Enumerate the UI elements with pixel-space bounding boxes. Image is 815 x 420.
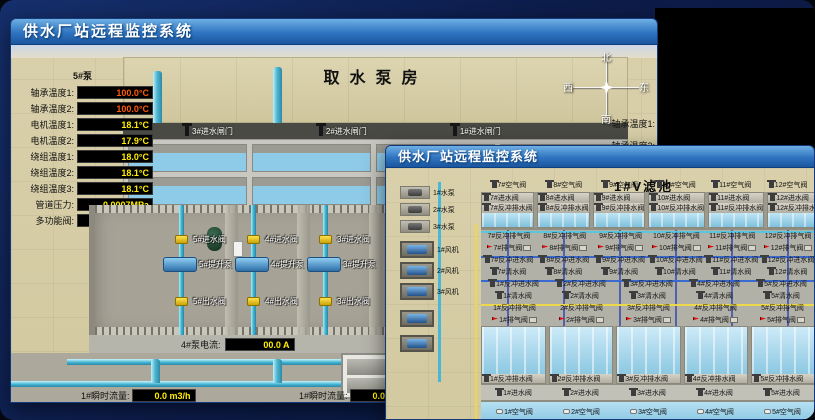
valve-box <box>663 317 671 323</box>
exhaust-valve[interactable]: 5#排气阀 <box>749 314 814 326</box>
exhaust-valve[interactable]: 2#排气阀 <box>548 314 615 326</box>
panel-row-label: 轴承温度2: <box>15 102 77 115</box>
bw-exhaust-label: 7#反冲排气阀 <box>488 231 531 241</box>
bw-exhaust-valve[interactable]: 8#反冲排气阀 <box>537 230 593 242</box>
panel-row-label: 多功能阀: <box>15 214 77 227</box>
valve-icon <box>631 293 636 299</box>
blower-housing <box>400 262 434 279</box>
blower-unit[interactable]: 2#风机 <box>400 262 481 279</box>
blower-label: 3#风机 <box>437 287 459 297</box>
exhaust-label: 2#排气阀 <box>566 315 595 325</box>
pump-column: 3#进水阀 3#提升泵 3#出水阀 <box>305 205 377 335</box>
top-air-valve-row: 7#空气阀 8#空气阀 9#空气阀 <box>481 168 814 192</box>
bw-inlet-label: 5#反冲进水阀 <box>764 279 807 289</box>
exhaust-label: 9#排气阀 <box>605 243 634 253</box>
bw-exhaust-valve[interactable]: 2#反冲排气阀 <box>548 302 615 314</box>
valve-icon <box>631 390 636 396</box>
air-valve[interactable]: 3#空气阀 <box>615 407 682 417</box>
lift-pump-icon[interactable] <box>163 257 197 272</box>
valve-icon <box>698 390 703 396</box>
clean-valve[interactable]: 5#清水阀 <box>749 290 814 302</box>
lift-pump-icon[interactable] <box>235 257 269 272</box>
red-flag-icon <box>760 317 766 323</box>
valve-box <box>797 317 805 323</box>
row-bw-inlet-bottom: 1#反冲进水阀2#反冲进水阀3#反冲进水阀4#反冲进水阀5#反冲进水阀 <box>481 278 814 290</box>
intake-gate[interactable]: 2#进水闸门 <box>319 126 367 137</box>
exhaust-valve[interactable]: 9#排气阀 <box>593 242 649 254</box>
bw-exhaust-label: 8#反冲排气阀 <box>543 231 586 241</box>
blower-unit[interactable]: 1#风机 <box>400 241 481 258</box>
clean-valve[interactable]: 4#清水阀 <box>682 290 749 302</box>
clean-valve-label: 12#清水阀 <box>775 267 808 277</box>
filter-cell[interactable]: 11#进水阀 11#反冲排水阀 <box>708 192 764 228</box>
clean-valve-label: 3#清水阀 <box>637 291 666 301</box>
clean-valve-label: 1#清水阀 <box>503 291 532 301</box>
gate-label: 1#进水闸门 <box>460 126 501 137</box>
scene-title: 取水泵房 <box>124 58 627 88</box>
panel-row: 电机温度1: 18.1°C <box>15 118 169 131</box>
valve-icon <box>596 195 601 201</box>
clean-valve-label: 11#清水阀 <box>719 267 751 277</box>
bottom-inlet-row: 1#进水阀 2#进水阀 3#进水阀 <box>481 384 814 400</box>
valve-icon <box>765 293 770 299</box>
water-pump-label: 1#水泵 <box>433 188 455 198</box>
float-valve-icon <box>563 409 570 414</box>
exhaust-label: 11#排气阀 <box>715 243 747 253</box>
bw-inlet-label: 12#反冲进水阀 <box>768 255 814 265</box>
pump-column: 4#进水阀 4#提升泵 4#出水阀 <box>233 205 305 335</box>
blower-label: 1#风机 <box>437 245 459 255</box>
bw-inlet-valve[interactable]: 11#反冲进水阀 <box>704 254 760 266</box>
pump-columns: 5#进水阀 5#提升泵 5#出水阀 4#进水阀 4#提升泵 <box>161 205 377 335</box>
bw-exhaust-valve[interactable]: 9#反冲排气阀 <box>593 230 649 242</box>
clean-valve-label: 4#清水阀 <box>704 291 733 301</box>
bw-exhaust-valve[interactable]: 7#反冲排气阀 <box>481 230 537 242</box>
exhaust-valve[interactable]: 10#排气阀 <box>648 242 704 254</box>
clean-valve[interactable]: 1#清水阀 <box>481 290 548 302</box>
outlet-valve-label: 3#出水阀 <box>337 296 370 307</box>
valve-icon <box>552 376 557 382</box>
drain-valve-label: 2#反冲排水阀 <box>558 374 601 383</box>
valve-icon <box>492 182 497 188</box>
pump4-current-value: 00.0 A <box>225 338 295 351</box>
exhaust-valve[interactable]: 11#排气阀 <box>704 242 760 254</box>
outlet-valve-label: 4#出水阀 <box>265 296 298 307</box>
exhaust-label: 8#排气阀 <box>549 243 578 253</box>
inlet-valve-icon[interactable] <box>175 235 188 244</box>
valve-icon <box>711 195 716 201</box>
valve-icon <box>619 376 624 382</box>
exhaust-label: 7#排气阀 <box>494 243 523 253</box>
outlet-valve-label: 5#出水阀 <box>193 296 226 307</box>
inlet-valve-label: 11#进水阀 <box>717 193 749 203</box>
valve-icon <box>603 182 608 188</box>
top-filter-pools: 7#进水阀 7#反冲排水阀 8#进水阀 <box>481 192 814 228</box>
row-bw-exhaust-top: 7#反冲排气阀8#反冲排气阀9#反冲排气阀10#反冲排气阀11#反冲排气阀12#… <box>481 230 814 242</box>
inlet-valve-label: 2#进水阀 <box>570 388 599 398</box>
bw-exhaust-valve[interactable]: 4#反冲排气阀 <box>682 302 749 314</box>
inlet-valve[interactable]: 4#进水阀 <box>682 388 749 398</box>
bw-inlet-valve[interactable]: 5#反冲进水阀 <box>749 278 814 290</box>
filter-grid: 7#空气阀 8#空气阀 9#空气阀 <box>481 168 814 420</box>
valve-icon <box>497 390 502 396</box>
panel-row: 绕组温度1: 18.0°C <box>15 150 169 163</box>
inlet-valve-row: 11#进水阀 <box>709 193 763 203</box>
valve-icon <box>484 205 489 211</box>
inlet-valve[interactable]: 5#进水阀 <box>749 388 814 398</box>
pump-shelf <box>400 203 430 216</box>
panel-row-label: 电机温度1: <box>15 118 77 131</box>
valve-icon <box>484 376 489 382</box>
lift-pump-icon[interactable] <box>307 257 341 272</box>
filter-cell[interactable]: 3#反冲排水阀 <box>616 326 681 384</box>
clean-valve[interactable]: 8#清水阀 <box>537 266 593 278</box>
valve-icon <box>540 195 545 201</box>
valve-icon <box>651 195 656 201</box>
exhaust-valve[interactable]: 3#排气阀 <box>615 314 682 326</box>
filter-cell[interactable]: 5#反冲排水阀 <box>751 326 814 384</box>
bw-inlet-label: 11#反冲进水阀 <box>712 255 758 265</box>
drain-valve-label: 4#反冲排水阀 <box>693 374 736 383</box>
water-pump-unit[interactable]: 2#水泵 <box>400 203 481 216</box>
blower-icon <box>407 266 427 275</box>
air-valve-label: 1#空气阀 <box>504 407 533 417</box>
water-pump-icon <box>408 206 422 213</box>
valve-icon <box>564 293 569 299</box>
inlet-valve-label: 5#进水阀 <box>771 388 800 398</box>
outlet-valve-icon[interactable] <box>247 297 260 306</box>
drain-valve-label: 3#反冲排水阀 <box>625 374 668 383</box>
drain-valve-label: 1#反冲排水阀 <box>490 374 533 383</box>
front-window-titlebar[interactable]: 供水厂站远程监控系统 <box>386 146 814 168</box>
pool-water <box>482 213 533 227</box>
clean-valve[interactable]: 12#清水阀 <box>760 266 814 278</box>
valve-box <box>804 245 812 251</box>
panel-row-label: 绕组温度3: <box>15 182 77 195</box>
blower-housing <box>400 283 434 300</box>
exhaust-valve[interactable]: 8#排气阀 <box>537 242 593 254</box>
inlet-valve-row: 12#进水阀 <box>768 193 814 203</box>
clean-valve[interactable]: 9#清水阀 <box>593 266 649 278</box>
intake-gate[interactable]: 3#进水闸门 <box>185 126 233 137</box>
bw-exhaust-valve[interactable]: 1#反冲排气阀 <box>481 302 548 314</box>
valve-box <box>693 245 701 251</box>
gate-valve-icon <box>319 126 323 136</box>
filter-cell[interactable]: 7#进水阀 7#反冲排水阀 <box>481 192 534 228</box>
red-flag-icon <box>764 245 770 251</box>
bw-exhaust-label: 12#反冲排气阀 <box>765 231 812 241</box>
panel-row-value: 18.1°C <box>77 118 153 131</box>
panel-row-value: 18.1°C <box>77 166 153 179</box>
panel-row-label: 管道压力: <box>15 198 77 211</box>
valve-icon <box>770 205 775 211</box>
inlet-valve-label: 9#进水阀 <box>602 193 631 203</box>
bw-inlet-valve[interactable]: 12#反冲进水阀 <box>760 254 814 266</box>
gate-valve-icon <box>185 126 189 136</box>
inlet-valve-label: 4#进水阀 <box>704 388 733 398</box>
pool-water <box>538 213 589 227</box>
water-pump-label: 3#水泵 <box>433 222 455 232</box>
valve-icon <box>557 281 562 287</box>
blower-pump-column: 1#水泵 2#水泵 <box>386 168 481 420</box>
bw-exhaust-valve[interactable]: 3#反冲排气阀 <box>615 302 682 314</box>
bw-inlet-valve[interactable]: 4#反冲进水阀 <box>682 278 749 290</box>
inlet-valve-label: 4#进水阀 <box>265 234 298 245</box>
filter-scene: 1#V滤池 1#水泵 <box>386 168 814 420</box>
row-clean-top: 7#清水阀8#清水阀9#清水阀10#清水阀11#清水阀12#清水阀 <box>481 266 814 278</box>
inlet-valve-icon[interactable] <box>319 235 332 244</box>
drain-valve-row: 2#反冲排水阀 <box>550 374 613 383</box>
blower-icon <box>407 245 427 254</box>
inlet-valve-row: 9#进水阀 <box>594 193 645 203</box>
filter-cell[interactable]: 4#反冲排水阀 <box>684 326 749 384</box>
pool-water <box>649 213 704 227</box>
exhaust-valve[interactable]: 12#排气阀 <box>760 242 814 254</box>
drain-valve-row: 7#反冲排水阀 <box>482 203 533 213</box>
bw-exhaust-valve[interactable]: 11#反冲排气阀 <box>704 230 760 242</box>
water-channel <box>252 177 371 205</box>
inlet-valve-label: 5#进水阀 <box>193 234 226 245</box>
air-valve[interactable]: 12#空气阀 <box>760 180 814 190</box>
bw-exhaust-label: 9#反冲排气阀 <box>599 231 642 241</box>
valve-icon <box>484 195 489 201</box>
valve-icon <box>485 257 490 263</box>
drain-valve-row: 9#反冲排水阀 <box>594 203 645 213</box>
panel-row-value: 100.0°C <box>77 102 153 115</box>
drain-valve-label: 7#反冲排水阀 <box>490 203 533 213</box>
bottom-filter-pools: 1#反冲排水阀 2#反冲排水阀 <box>481 326 814 384</box>
flow-value: 0.0 m3/h <box>132 389 196 402</box>
red-flag-icon <box>487 245 493 251</box>
water-pump-unit[interactable]: 1#水泵 <box>400 186 481 199</box>
exhaust-label: 12#排气阀 <box>771 243 804 253</box>
water-pump-unit[interactable]: 3#水泵 <box>400 220 481 233</box>
air-valve[interactable]: 8#空气阀 <box>537 180 593 190</box>
valve-icon <box>547 269 552 275</box>
valve-box <box>748 245 756 251</box>
clean-valve-label: 5#清水阀 <box>771 291 800 301</box>
air-valve[interactable]: 1#空气阀 <box>481 407 548 417</box>
float-valve-icon <box>630 409 637 414</box>
valve-icon <box>547 182 552 188</box>
flow-label: 1#瞬时流量: <box>81 389 130 402</box>
valve-box <box>596 317 604 323</box>
air-valve-label: 5#空气阀 <box>772 407 801 417</box>
exhaust-valve[interactable]: 7#排气阀 <box>481 242 537 254</box>
clean-valve-label: 10#清水阀 <box>663 267 696 277</box>
valve-icon <box>596 257 601 263</box>
row-exhaust-top: 7#排气阀8#排气阀9#排气阀10#排气阀11#排气阀12#排气阀 <box>481 242 814 254</box>
bw-inlet-valve[interactable]: 1#反冲进水阀 <box>481 278 548 290</box>
red-flag-icon <box>708 245 714 251</box>
panel-row: 轴承温度2: 100.0°C <box>15 102 169 115</box>
filter-cell[interactable]: 2#反冲排水阀 <box>549 326 614 384</box>
pump-shelf <box>400 220 430 233</box>
bw-inlet-valve[interactable]: 2#反冲进水阀 <box>548 278 615 290</box>
air-valve[interactable]: 4#空气阀 <box>682 407 749 417</box>
inlet-valve-row: 8#进水阀 <box>538 193 589 203</box>
exhaust-valve[interactable]: 4#排气阀 <box>682 314 749 326</box>
compass: 北 南 西 东 <box>567 51 647 125</box>
water-pump-icon <box>408 189 422 196</box>
bw-exhaust-label: 1#反冲排气阀 <box>493 303 536 313</box>
inlet-valve[interactable]: 2#进水阀 <box>548 388 615 398</box>
bw-inlet-valve[interactable]: 3#反冲进水阀 <box>615 278 682 290</box>
lift-pump-label: 4#提升泵 <box>271 259 304 270</box>
clean-valve-label: 8#清水阀 <box>553 267 582 277</box>
air-valve-label: 7#空气阀 <box>498 180 527 190</box>
blower-unit[interactable]: 3#风机 <box>400 283 481 300</box>
red-flag-icon <box>492 317 498 323</box>
pump-column: 5#进水阀 5#提升泵 5#出水阀 <box>161 205 233 335</box>
gate-valve-icon <box>453 126 457 136</box>
air-valve[interactable]: 2#空气阀 <box>548 407 615 417</box>
bw-exhaust-label: 5#反冲排气阀 <box>761 303 804 313</box>
bw-inlet-valve[interactable]: 9#反冲进水阀 <box>593 254 649 266</box>
drain-valve-row: 11#反冲排水阀 <box>709 203 763 213</box>
intake-gate[interactable]: 1#进水闸门 <box>453 126 501 137</box>
bw-exhaust-valve[interactable]: 10#反冲排气阀 <box>648 230 704 242</box>
bw-exhaust-label: 4#反冲排气阀 <box>694 303 737 313</box>
bw-inlet-label: 8#反冲进水阀 <box>546 255 589 265</box>
valve-icon <box>691 281 696 287</box>
air-valve[interactable]: 10#空气阀 <box>648 180 704 190</box>
blower-unit[interactable] <box>400 335 481 352</box>
bw-exhaust-label: 3#反冲排气阀 <box>627 303 670 313</box>
water-pump-icon <box>408 223 422 230</box>
inlet-valve-icon[interactable] <box>247 235 260 244</box>
drain-valve-label: 11#反冲排水阀 <box>717 203 763 213</box>
air-valve-label: 12#空气阀 <box>775 180 808 190</box>
air-valve-label: 8#空气阀 <box>553 180 582 190</box>
blower-icon <box>407 287 427 296</box>
background-window <box>655 8 815 148</box>
drain-valve-row: 3#反冲排水阀 <box>617 374 680 383</box>
pump4-current-label: 4#泵电流: <box>181 338 221 351</box>
outlet-valve-icon[interactable] <box>319 297 332 306</box>
float-valve-icon <box>496 409 503 414</box>
exhaust-label: 4#排气阀 <box>700 315 729 325</box>
clean-valve-label: 7#清水阀 <box>498 267 527 277</box>
drain-valve-label: 12#反冲排水阀 <box>776 203 814 213</box>
filter-cell[interactable]: 9#进水阀 9#反冲排水阀 <box>593 192 646 228</box>
red-flag-icon <box>542 245 548 251</box>
compass-north: 北 <box>601 49 611 64</box>
air-valve-label: 9#空气阀 <box>609 180 638 190</box>
inlet-valve-label: 10#进水阀 <box>657 193 690 203</box>
bw-inlet-valve[interactable]: 10#反冲进水阀 <box>648 254 704 266</box>
inlet-valve-label: 8#进水阀 <box>546 193 575 203</box>
clean-valve[interactable]: 3#清水阀 <box>615 290 682 302</box>
valve-icon <box>624 281 629 287</box>
drain-valve-label: 10#反冲排水阀 <box>657 203 704 213</box>
valve-box <box>529 317 537 323</box>
filter-cell[interactable]: 1#反冲排水阀 <box>481 326 546 384</box>
valve-icon <box>698 293 703 299</box>
water-channel <box>252 144 371 172</box>
filter-cell[interactable]: 10#进水阀 10#反冲排水阀 <box>648 192 705 228</box>
clean-valve[interactable]: 10#清水阀 <box>648 266 704 278</box>
bw-inlet-valve[interactable]: 7#反冲进水阀 <box>481 254 537 266</box>
filter-cell[interactable]: 12#进水阀 12#反冲排水阀 <box>767 192 814 228</box>
drain-valve-row: 1#反冲排水阀 <box>482 374 545 383</box>
bw-inlet-label: 2#反冲进水阀 <box>563 279 606 289</box>
panel-row-label: 绕组温度2: <box>15 166 77 179</box>
side-panel-label: 轴承温度1: <box>577 117 655 130</box>
pool-water <box>709 213 763 227</box>
inlet-valve[interactable]: 3#进水阀 <box>615 388 682 398</box>
red-flag-icon <box>559 317 565 323</box>
float-valve-icon <box>764 409 771 414</box>
valve-icon <box>540 205 545 211</box>
valve-box <box>579 245 587 251</box>
air-valve-label: 3#空气阀 <box>638 407 667 417</box>
drain-valve-row: 12#反冲排水阀 <box>768 203 814 213</box>
valve-icon <box>687 376 692 382</box>
inlet-valve[interactable]: 1#进水阀 <box>481 388 548 398</box>
inlet-valve-label: 3#进水阀 <box>637 388 666 398</box>
blower-housing <box>400 310 434 327</box>
blower-housing <box>400 335 434 352</box>
valve-icon <box>765 390 770 396</box>
float-valve-icon <box>697 409 704 414</box>
exhaust-label: 3#排气阀 <box>633 315 662 325</box>
valve-icon <box>769 182 774 188</box>
drain-valve-label: 9#反冲排水阀 <box>602 203 645 213</box>
valve-box <box>523 245 531 251</box>
bw-exhaust-valve[interactable]: 5#反冲排气阀 <box>749 302 814 314</box>
air-valve[interactable]: 9#空气阀 <box>593 180 649 190</box>
exhaust-label: 5#排气阀 <box>767 315 796 325</box>
bw-inlet-valve[interactable]: 8#反冲进水阀 <box>537 254 593 266</box>
air-valve-label: 10#空气阀 <box>663 180 696 190</box>
bw-exhaust-valve[interactable]: 12#反冲排气阀 <box>760 230 814 242</box>
clean-valve[interactable]: 7#清水阀 <box>481 266 537 278</box>
outlet-valve-icon[interactable] <box>175 297 188 306</box>
panel-row: 绕组温度2: 18.1°C <box>15 166 169 179</box>
exhaust-valve[interactable]: 1#排气阀 <box>481 314 548 326</box>
valve-icon <box>657 269 662 275</box>
flow-label: 1#瞬时流量: <box>299 389 348 402</box>
row-exhaust-bottom: 1#排气阀2#排气阀3#排气阀4#排气阀5#排气阀 <box>481 314 814 326</box>
blower-unit[interactable] <box>400 310 481 327</box>
air-valve[interactable]: 11#空气阀 <box>704 180 760 190</box>
exhaust-label: 1#排气阀 <box>499 315 528 325</box>
valve-icon <box>596 205 601 211</box>
red-flag-icon <box>652 245 658 251</box>
outlet-pipe-stub <box>273 359 282 383</box>
desktop: 供水厂站远程监控系统 取水泵房 3#进水闸门 2#进水闸门 <box>0 0 815 420</box>
clean-valve[interactable]: 2#清水阀 <box>548 290 615 302</box>
lift-pump-label: 3#提升泵 <box>343 259 376 270</box>
drain-valve-row: 5#反冲排水阀 <box>752 374 814 383</box>
valve-icon <box>713 269 718 275</box>
filter-cell[interactable]: 8#进水阀 8#反冲排水阀 <box>537 192 590 228</box>
window-v-filter: 供水厂站远程监控系统 1#V滤池 1#水泵 <box>385 145 815 420</box>
valve-icon <box>758 281 763 287</box>
panel-row-value: 18.0°C <box>77 150 153 163</box>
clean-valve[interactable]: 11#清水阀 <box>704 266 760 278</box>
blower-icon <box>407 314 427 323</box>
air-valve[interactable]: 7#空气阀 <box>481 180 537 190</box>
valve-box <box>635 245 643 251</box>
blower-label: 2#风机 <box>437 266 459 276</box>
air-valve-label: 11#空气阀 <box>719 180 751 190</box>
air-valve[interactable]: 5#空气阀 <box>749 407 814 417</box>
back-window-titlebar[interactable]: 供水厂站远程监控系统 <box>11 19 657 45</box>
valve-icon <box>492 269 497 275</box>
drain-valve-label: 5#反冲排水阀 <box>760 374 803 383</box>
